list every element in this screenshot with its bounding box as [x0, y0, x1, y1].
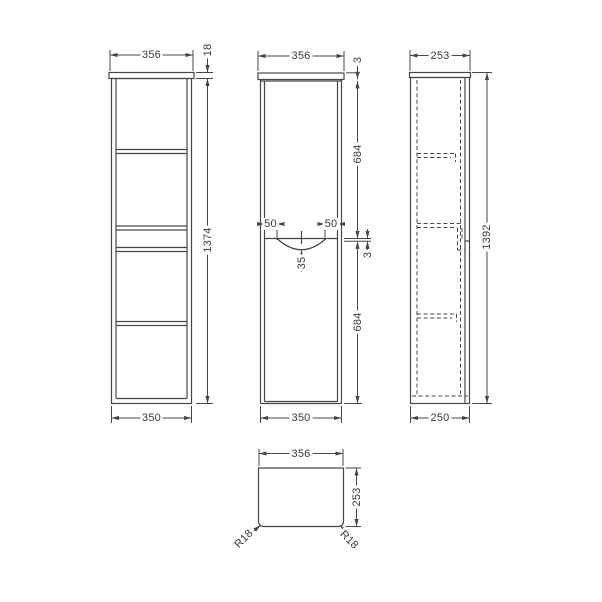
- technical-drawing-lines: [0, 0, 602, 602]
- front-doors-view: [258, 73, 344, 404]
- dim-handle-offset-left: 50: [262, 218, 279, 230]
- dim-carcass-height: 1374: [202, 225, 214, 254]
- dim-lower-door-height: 684: [352, 311, 364, 334]
- dim-plan-depth: 253: [351, 486, 363, 509]
- front-carcass-view: [109, 73, 194, 404]
- dim-doors-top-gap: 3: [352, 55, 364, 65]
- dim-side-depth-bottom: 250: [429, 412, 452, 424]
- dim-carcass-top-thickness: 18: [202, 42, 214, 59]
- cabinet-technical-drawing: 356 18 1374 350 356 3 684 50 50 35 3 684…: [0, 0, 602, 602]
- side-view-hidden-lines: [412, 80, 468, 396]
- plan-view: [259, 468, 344, 527]
- dim-doors-width-bottom: 350: [290, 412, 313, 424]
- plan-view-dimensions: [250, 449, 362, 535]
- front-carcass-dimensions: [110, 50, 213, 423]
- dim-carcass-width-bottom: 350: [140, 412, 163, 424]
- dim-side-depth-top: 253: [429, 50, 452, 62]
- dim-carcass-width-top: 356: [140, 49, 163, 61]
- front-doors-dimensions: [257, 51, 371, 423]
- dim-side-height: 1392: [481, 222, 493, 251]
- dim-upper-door-height: 684: [352, 143, 364, 166]
- dim-handle-depth: 35: [296, 255, 308, 272]
- dim-doors-width-top: 356: [290, 50, 313, 62]
- side-view-dimensions: [410, 50, 492, 423]
- dim-door-gap: 3: [362, 250, 374, 260]
- side-view: [410, 73, 471, 404]
- dim-handle-offset-right: 50: [323, 218, 340, 230]
- dim-plan-width: 356: [290, 448, 313, 460]
